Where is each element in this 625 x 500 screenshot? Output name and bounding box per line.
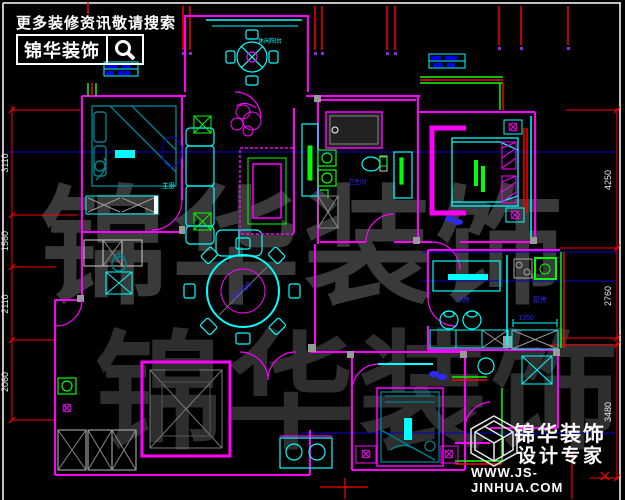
tall-cabinet [394, 152, 412, 198]
tv-cabinet [302, 124, 318, 196]
stove [514, 259, 532, 278]
basin [58, 378, 76, 394]
toilet [362, 156, 387, 171]
header-slogan: 更多装修资讯敬请搜索 [16, 12, 176, 33]
stools [440, 311, 481, 329]
bed-label-block [115, 150, 135, 158]
kitchen-cabinet [512, 330, 558, 349]
rug [240, 148, 294, 234]
dining-area: Φ1400 [184, 238, 300, 344]
slippers-icon [445, 216, 463, 225]
bedroom-left-label: 主卧 [162, 181, 176, 190]
footer-website: WWW.JS-JINHUA.COM [471, 465, 625, 495]
vase-stand [106, 251, 132, 294]
dim-right-2760: 2760 [603, 286, 613, 306]
bathroom-label: 卫生间 [348, 178, 366, 186]
bathtub [326, 112, 382, 148]
wardrobe-frame [432, 128, 466, 213]
bedroom-bottom [356, 364, 458, 466]
cistern [380, 157, 387, 166]
sink [535, 258, 556, 279]
study-label: 书房 [456, 295, 470, 304]
walls [55, 16, 560, 475]
bathroom-bottom-right [478, 356, 552, 384]
bath-cabinet [318, 196, 338, 228]
brand-name: 锦华装饰 [18, 36, 106, 63]
kitchen: 1350 厨房 [512, 258, 558, 349]
dim-left-1560: 1560 [0, 231, 10, 251]
living-room [186, 103, 318, 256]
wardrobe [86, 196, 158, 214]
bed [92, 106, 176, 186]
dim-left-2110: 2110 [0, 294, 10, 313]
sofa [186, 128, 262, 256]
legend-table-2 [429, 54, 465, 68]
plant [231, 103, 261, 136]
wash-basins [318, 150, 336, 198]
bedroom-top-left: 主卧 [86, 106, 182, 214]
slogan-text: 更多装修资讯敬请搜索 [16, 12, 176, 33]
footer-tagline: 设计专家 [517, 441, 605, 468]
side-tables [194, 116, 211, 230]
bedroom-right [432, 120, 524, 225]
bed-runner [474, 160, 478, 186]
flower-symbol [63, 404, 71, 412]
dim-left-3110: 3110 [0, 153, 10, 172]
dim-right-4250: 4250 [603, 170, 613, 190]
balcony: 休闲阳台 [206, 20, 302, 85]
pillows [502, 142, 516, 203]
storage-boxes [58, 430, 136, 470]
study: 书房 [430, 255, 508, 348]
corridor-vanity [280, 436, 332, 468]
tv [308, 146, 312, 180]
basin [478, 358, 494, 374]
search-icon [108, 36, 142, 63]
shower-box [522, 356, 552, 384]
low-cabinet [430, 330, 508, 348]
kitchen-dim-text: 1350 [518, 315, 534, 322]
slippers-icon [429, 371, 447, 380]
desk-top [448, 274, 488, 280]
stairwell [142, 362, 230, 456]
balcony-label: 休闲阳台 [258, 37, 282, 45]
brand-search-box: 锦华装饰 [16, 34, 144, 65]
bed-label-block [404, 418, 412, 440]
left-dimension-chain: 3110 1560 2110 2060 [0, 106, 80, 423]
dim-left-2060: 2060 [0, 372, 10, 392]
bathroom-middle: 卫生间 [318, 112, 412, 228]
nightstands [504, 120, 524, 222]
foyer [58, 378, 136, 470]
dining-table-diameter: Φ1400 [229, 280, 254, 303]
kitchen-label: 厨房 [533, 295, 547, 304]
